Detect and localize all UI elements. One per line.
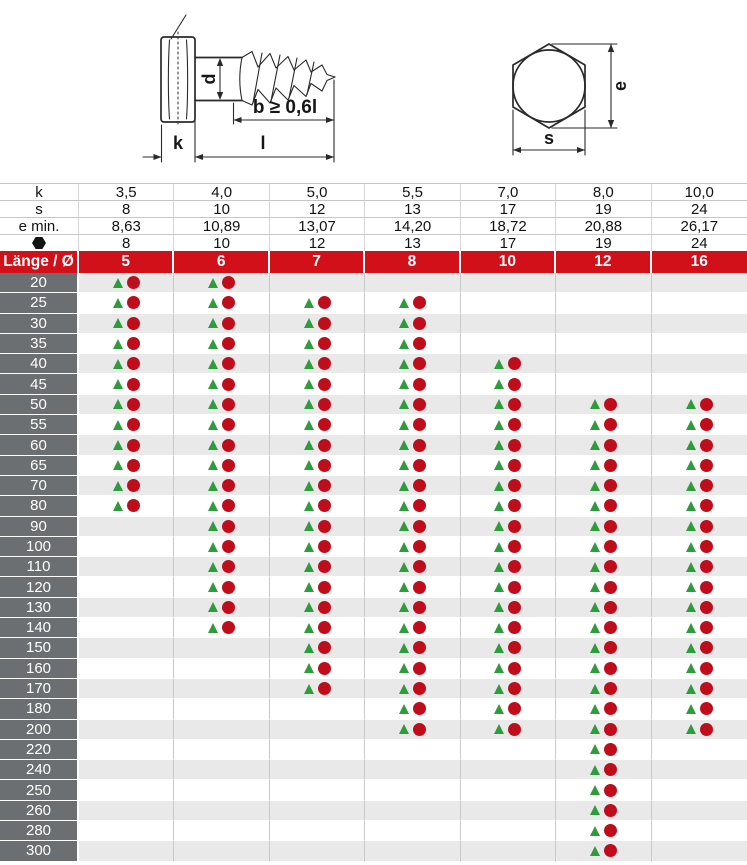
dot-marker bbox=[222, 439, 235, 452]
availability-cell bbox=[79, 395, 174, 415]
triangle-marker bbox=[494, 684, 504, 694]
availability-cell bbox=[365, 435, 460, 455]
availability-cell bbox=[79, 699, 174, 719]
dot-marker bbox=[508, 601, 521, 614]
availability-cell bbox=[79, 334, 174, 354]
triangle-marker bbox=[113, 298, 123, 308]
diameter-header-5: 5 bbox=[79, 251, 174, 273]
dot-marker bbox=[413, 581, 426, 594]
table-row-20: 20 bbox=[0, 273, 747, 293]
spec-value: 3,5 bbox=[79, 184, 174, 200]
dot-marker bbox=[604, 844, 617, 857]
triangle-marker bbox=[590, 562, 600, 572]
triangle-marker bbox=[208, 623, 218, 633]
triangle-marker bbox=[686, 643, 696, 653]
availability-cell bbox=[79, 638, 174, 658]
availability-cell bbox=[79, 577, 174, 597]
availability-cell bbox=[556, 374, 651, 394]
dot-marker bbox=[700, 540, 713, 553]
dot-marker bbox=[604, 459, 617, 472]
availability-cell bbox=[365, 537, 460, 557]
triangle-marker bbox=[304, 318, 314, 328]
dot-marker bbox=[700, 520, 713, 533]
table-row-280: 280 bbox=[0, 821, 747, 841]
availability-cell bbox=[556, 659, 651, 679]
dot-marker bbox=[604, 621, 617, 634]
triangle-marker bbox=[590, 846, 600, 856]
triangle-marker bbox=[304, 602, 314, 612]
triangle-marker bbox=[590, 826, 600, 836]
dot-marker bbox=[413, 357, 426, 370]
triangle-marker bbox=[494, 582, 504, 592]
dot-marker bbox=[508, 378, 521, 391]
triangle-marker bbox=[304, 663, 314, 673]
availability-cell bbox=[556, 517, 651, 537]
dot-marker bbox=[318, 641, 331, 654]
spec-row-hex: 8101213171924 bbox=[0, 235, 747, 251]
table-row-90: 90 bbox=[0, 517, 747, 537]
dot-marker bbox=[222, 418, 235, 431]
dot-marker bbox=[413, 337, 426, 350]
diameter-header-12: 12 bbox=[556, 251, 651, 273]
availability-cell bbox=[461, 395, 556, 415]
triangle-marker bbox=[590, 684, 600, 694]
spec-label: s bbox=[0, 201, 79, 217]
availability-cell bbox=[652, 720, 747, 740]
dot-marker bbox=[318, 378, 331, 391]
dot-marker bbox=[222, 499, 235, 512]
triangle-marker bbox=[399, 298, 409, 308]
table-row-100: 100 bbox=[0, 537, 747, 557]
triangle-marker bbox=[208, 339, 218, 349]
availability-cell bbox=[174, 334, 269, 354]
dot-marker bbox=[700, 641, 713, 654]
triangle-marker bbox=[494, 704, 504, 714]
availability-cell bbox=[270, 476, 365, 496]
availability-cell bbox=[556, 679, 651, 699]
spec-value: 24 bbox=[652, 201, 747, 217]
availability-cell bbox=[79, 557, 174, 577]
triangle-marker bbox=[399, 440, 409, 450]
availability-cell bbox=[270, 699, 365, 719]
table-row-140: 140 bbox=[0, 618, 747, 638]
availability-cell bbox=[652, 821, 747, 841]
availability-cell bbox=[461, 496, 556, 516]
table-row-300: 300 bbox=[0, 841, 747, 861]
dot-marker bbox=[413, 723, 426, 736]
availability-cell bbox=[461, 476, 556, 496]
triangle-marker bbox=[399, 339, 409, 349]
availability-cell bbox=[365, 760, 460, 780]
table-row-220: 220 bbox=[0, 740, 747, 760]
spec-value: 8 bbox=[79, 201, 174, 217]
triangle-marker bbox=[399, 663, 409, 673]
triangle-marker bbox=[590, 724, 600, 734]
availability-cell bbox=[174, 435, 269, 455]
triangle-marker bbox=[113, 339, 123, 349]
dot-marker bbox=[700, 621, 713, 634]
dot-marker bbox=[604, 540, 617, 553]
availability-cell bbox=[174, 496, 269, 516]
availability-cell bbox=[174, 598, 269, 618]
dim-label-k: k bbox=[173, 133, 184, 153]
triangle-marker bbox=[113, 481, 123, 491]
triangle-marker bbox=[494, 521, 504, 531]
availability-cell bbox=[461, 720, 556, 740]
availability-cell bbox=[461, 415, 556, 435]
dot-marker bbox=[508, 723, 521, 736]
availability-cell bbox=[461, 273, 556, 293]
triangle-marker bbox=[399, 521, 409, 531]
availability-cell bbox=[365, 334, 460, 354]
availability-cell bbox=[79, 314, 174, 334]
triangle-marker bbox=[494, 420, 504, 430]
table-row-110: 110 bbox=[0, 557, 747, 577]
availability-cell bbox=[365, 496, 460, 516]
table-row-45: 45 bbox=[0, 374, 747, 394]
availability-cell bbox=[652, 537, 747, 557]
dot-marker bbox=[508, 418, 521, 431]
availability-cell bbox=[270, 659, 365, 679]
dot-marker bbox=[222, 621, 235, 634]
length-label: 20 bbox=[0, 273, 79, 293]
triangle-marker bbox=[590, 704, 600, 714]
triangle-marker bbox=[494, 542, 504, 552]
dot-marker bbox=[700, 682, 713, 695]
dot-marker bbox=[604, 560, 617, 573]
availability-cell bbox=[174, 415, 269, 435]
availability-cell bbox=[79, 740, 174, 760]
dot-marker bbox=[700, 723, 713, 736]
availability-cell bbox=[174, 537, 269, 557]
dot-marker bbox=[127, 337, 140, 350]
triangle-marker bbox=[399, 602, 409, 612]
dot-marker bbox=[700, 662, 713, 675]
dot-marker bbox=[508, 702, 521, 715]
dot-marker bbox=[604, 439, 617, 452]
dot-marker bbox=[222, 560, 235, 573]
triangle-marker bbox=[590, 399, 600, 409]
availability-cell bbox=[556, 577, 651, 597]
triangle-marker bbox=[590, 521, 600, 531]
availability-cell bbox=[652, 435, 747, 455]
availability-cell bbox=[174, 659, 269, 679]
availability-cell bbox=[652, 314, 747, 334]
spec-label-hex bbox=[0, 235, 79, 251]
triangle-marker bbox=[686, 582, 696, 592]
triangle-marker bbox=[208, 298, 218, 308]
dot-marker bbox=[318, 337, 331, 350]
availability-cell bbox=[174, 517, 269, 537]
length-label: 40 bbox=[0, 354, 79, 374]
availability-cell bbox=[652, 577, 747, 597]
availability-cell bbox=[270, 598, 365, 618]
dot-marker bbox=[222, 479, 235, 492]
availability-cell bbox=[79, 720, 174, 740]
spec-value: 10 bbox=[174, 235, 269, 251]
triangle-marker bbox=[208, 602, 218, 612]
availability-cell bbox=[556, 314, 651, 334]
triangle-marker bbox=[590, 663, 600, 673]
availability-cell bbox=[365, 273, 460, 293]
availability-cell bbox=[652, 780, 747, 800]
dot-marker bbox=[222, 581, 235, 594]
triangle-marker bbox=[208, 501, 218, 511]
availability-cell bbox=[556, 740, 651, 760]
availability-cell bbox=[556, 537, 651, 557]
availability-cell bbox=[79, 801, 174, 821]
availability-cell bbox=[79, 679, 174, 699]
triangle-marker bbox=[494, 440, 504, 450]
availability-cell bbox=[461, 354, 556, 374]
availability-cell bbox=[79, 496, 174, 516]
availability-cell bbox=[365, 841, 460, 861]
dot-marker bbox=[508, 398, 521, 411]
availability-cell bbox=[174, 801, 269, 821]
dot-marker bbox=[413, 560, 426, 573]
availability-cell bbox=[652, 801, 747, 821]
table-row-30: 30 bbox=[0, 314, 747, 334]
triangle-marker bbox=[304, 399, 314, 409]
spec-value: 17 bbox=[461, 235, 556, 251]
dot-marker bbox=[604, 479, 617, 492]
inscribed-circle bbox=[513, 50, 585, 122]
triangle-marker bbox=[494, 399, 504, 409]
dot-marker bbox=[318, 439, 331, 452]
dot-marker bbox=[318, 621, 331, 634]
availability-cell bbox=[556, 780, 651, 800]
availability-cell bbox=[556, 720, 651, 740]
triangle-marker bbox=[686, 663, 696, 673]
availability-cell bbox=[652, 638, 747, 658]
dot-marker bbox=[127, 499, 140, 512]
availability-cell bbox=[461, 293, 556, 313]
length-label: 300 bbox=[0, 841, 79, 861]
dot-marker bbox=[318, 499, 331, 512]
dot-marker bbox=[127, 317, 140, 330]
availability-cell bbox=[174, 293, 269, 313]
spec-label: k bbox=[0, 184, 79, 200]
length-label: 30 bbox=[0, 314, 79, 334]
triangle-marker bbox=[208, 521, 218, 531]
dot-marker bbox=[604, 743, 617, 756]
table-row-120: 120 bbox=[0, 577, 747, 597]
availability-cell bbox=[652, 598, 747, 618]
availability-cell bbox=[174, 618, 269, 638]
availability-cell bbox=[461, 517, 556, 537]
triangle-marker bbox=[590, 643, 600, 653]
availability-cell bbox=[174, 841, 269, 861]
availability-cell bbox=[79, 821, 174, 841]
availability-cell bbox=[556, 801, 651, 821]
availability-cell bbox=[270, 293, 365, 313]
availability-cell bbox=[556, 415, 651, 435]
dot-marker bbox=[604, 581, 617, 594]
triangle-marker bbox=[590, 744, 600, 754]
availability-cell bbox=[365, 780, 460, 800]
dot-marker bbox=[127, 296, 140, 309]
triangle-marker bbox=[686, 542, 696, 552]
length-label: 100 bbox=[0, 537, 79, 557]
diameter-header-row: Länge / Ø 5 6 7 8 10 12 16 bbox=[0, 251, 747, 273]
triangle-marker bbox=[494, 643, 504, 653]
triangle-marker bbox=[113, 359, 123, 369]
spec-value: 4,0 bbox=[174, 184, 269, 200]
availability-cell bbox=[652, 760, 747, 780]
dot-marker bbox=[318, 581, 331, 594]
availability-cell bbox=[270, 679, 365, 699]
spec-value: 24 bbox=[652, 235, 747, 251]
length-label: 25 bbox=[0, 293, 79, 313]
availability-cell bbox=[365, 517, 460, 537]
availability-cell bbox=[174, 720, 269, 740]
availability-cell bbox=[556, 699, 651, 719]
availability-cell bbox=[79, 456, 174, 476]
length-label: 80 bbox=[0, 496, 79, 516]
triangle-marker bbox=[590, 481, 600, 491]
dot-marker bbox=[127, 378, 140, 391]
triangle-marker bbox=[494, 481, 504, 491]
leader-line bbox=[171, 15, 186, 39]
availability-cell bbox=[556, 598, 651, 618]
table-row-50: 50 bbox=[0, 395, 747, 415]
availability-cell bbox=[174, 314, 269, 334]
dot-marker bbox=[604, 641, 617, 654]
dot-marker bbox=[413, 459, 426, 472]
triangle-marker bbox=[208, 318, 218, 328]
availability-cell bbox=[365, 638, 460, 658]
spec-value: 12 bbox=[270, 201, 365, 217]
availability-cell bbox=[270, 841, 365, 861]
length-label: 65 bbox=[0, 456, 79, 476]
triangle-marker bbox=[686, 481, 696, 491]
dot-marker bbox=[413, 520, 426, 533]
dim-label-b: b ≥ 0,6l bbox=[253, 97, 317, 118]
availability-cell bbox=[174, 354, 269, 374]
triangle-marker bbox=[590, 785, 600, 795]
triangle-marker bbox=[686, 684, 696, 694]
availability-cell bbox=[365, 415, 460, 435]
length-label: 200 bbox=[0, 720, 79, 740]
triangle-marker bbox=[399, 501, 409, 511]
length-label: 180 bbox=[0, 699, 79, 719]
dim-label-s: s bbox=[544, 128, 554, 148]
availability-cell bbox=[174, 476, 269, 496]
availability-cell bbox=[79, 435, 174, 455]
diameter-header-8: 8 bbox=[365, 251, 460, 273]
spec-value: 10 bbox=[174, 201, 269, 217]
dimension-spec-table: k3,54,05,05,57,08,010,0s8101213171924e m… bbox=[0, 183, 747, 251]
table-row-200: 200 bbox=[0, 720, 747, 740]
availability-cell bbox=[652, 496, 747, 516]
lag-screw-side-view-drawing: d b ≥ 0,6l k l bbox=[143, 15, 335, 162]
availability-cell bbox=[270, 517, 365, 537]
dot-marker bbox=[604, 398, 617, 411]
availability-cell bbox=[556, 273, 651, 293]
spec-row-k: k3,54,05,05,57,08,010,0 bbox=[0, 184, 747, 201]
triangle-marker bbox=[208, 440, 218, 450]
triangle-marker bbox=[304, 379, 314, 389]
triangle-marker bbox=[399, 684, 409, 694]
dot-marker bbox=[222, 296, 235, 309]
availability-cell bbox=[652, 273, 747, 293]
availability-cell bbox=[365, 618, 460, 638]
dot-marker bbox=[413, 682, 426, 695]
triangle-marker bbox=[686, 420, 696, 430]
dot-marker bbox=[508, 621, 521, 634]
dot-marker bbox=[222, 337, 235, 350]
availability-cell bbox=[79, 517, 174, 537]
triangle-marker bbox=[304, 643, 314, 653]
dot-marker bbox=[508, 540, 521, 553]
dot-marker bbox=[604, 520, 617, 533]
availability-cell bbox=[270, 395, 365, 415]
availability-cell bbox=[652, 354, 747, 374]
availability-cell bbox=[270, 415, 365, 435]
triangle-marker bbox=[686, 724, 696, 734]
availability-cell bbox=[174, 679, 269, 699]
table-row-170: 170 bbox=[0, 679, 747, 699]
triangle-marker bbox=[590, 602, 600, 612]
triangle-marker bbox=[494, 379, 504, 389]
dot-marker bbox=[318, 398, 331, 411]
spec-value: 20,88 bbox=[556, 218, 651, 234]
dot-marker bbox=[413, 479, 426, 492]
availability-table-body: 2025303540455055606570809010011012013014… bbox=[0, 273, 747, 862]
dot-marker bbox=[700, 560, 713, 573]
availability-cell bbox=[270, 740, 365, 760]
availability-cell bbox=[365, 354, 460, 374]
spec-row-s: s8101213171924 bbox=[0, 201, 747, 218]
length-diameter-header: Länge / Ø bbox=[0, 251, 79, 273]
triangle-marker bbox=[399, 481, 409, 491]
dot-marker bbox=[318, 418, 331, 431]
availability-cell bbox=[79, 415, 174, 435]
dot-marker bbox=[604, 682, 617, 695]
triangle-marker bbox=[208, 278, 218, 288]
spec-value: 5,0 bbox=[270, 184, 365, 200]
availability-cell bbox=[652, 374, 747, 394]
triangle-marker bbox=[304, 481, 314, 491]
dot-marker bbox=[604, 804, 617, 817]
dot-marker bbox=[222, 276, 235, 289]
availability-cell bbox=[79, 293, 174, 313]
length-label: 150 bbox=[0, 638, 79, 658]
table-row-35: 35 bbox=[0, 334, 747, 354]
screw-spec-sheet: d b ≥ 0,6l k l bbox=[0, 0, 747, 865]
availability-cell bbox=[556, 496, 651, 516]
triangle-marker bbox=[304, 298, 314, 308]
triangle-marker bbox=[399, 724, 409, 734]
availability-cell bbox=[270, 435, 365, 455]
dot-marker bbox=[700, 499, 713, 512]
triangle-marker bbox=[494, 562, 504, 572]
length-label: 50 bbox=[0, 395, 79, 415]
length-label: 120 bbox=[0, 577, 79, 597]
availability-cell bbox=[461, 659, 556, 679]
availability-cell bbox=[365, 293, 460, 313]
dot-marker bbox=[413, 540, 426, 553]
triangle-marker bbox=[686, 521, 696, 531]
length-label: 70 bbox=[0, 476, 79, 496]
spec-label: e min. bbox=[0, 218, 79, 234]
availability-cell bbox=[652, 415, 747, 435]
dot-marker bbox=[413, 378, 426, 391]
dot-marker bbox=[127, 439, 140, 452]
spec-row-emin: e min.8,6310,8913,0714,2018,7220,8826,17 bbox=[0, 218, 747, 235]
availability-cell bbox=[174, 456, 269, 476]
dot-marker bbox=[413, 418, 426, 431]
